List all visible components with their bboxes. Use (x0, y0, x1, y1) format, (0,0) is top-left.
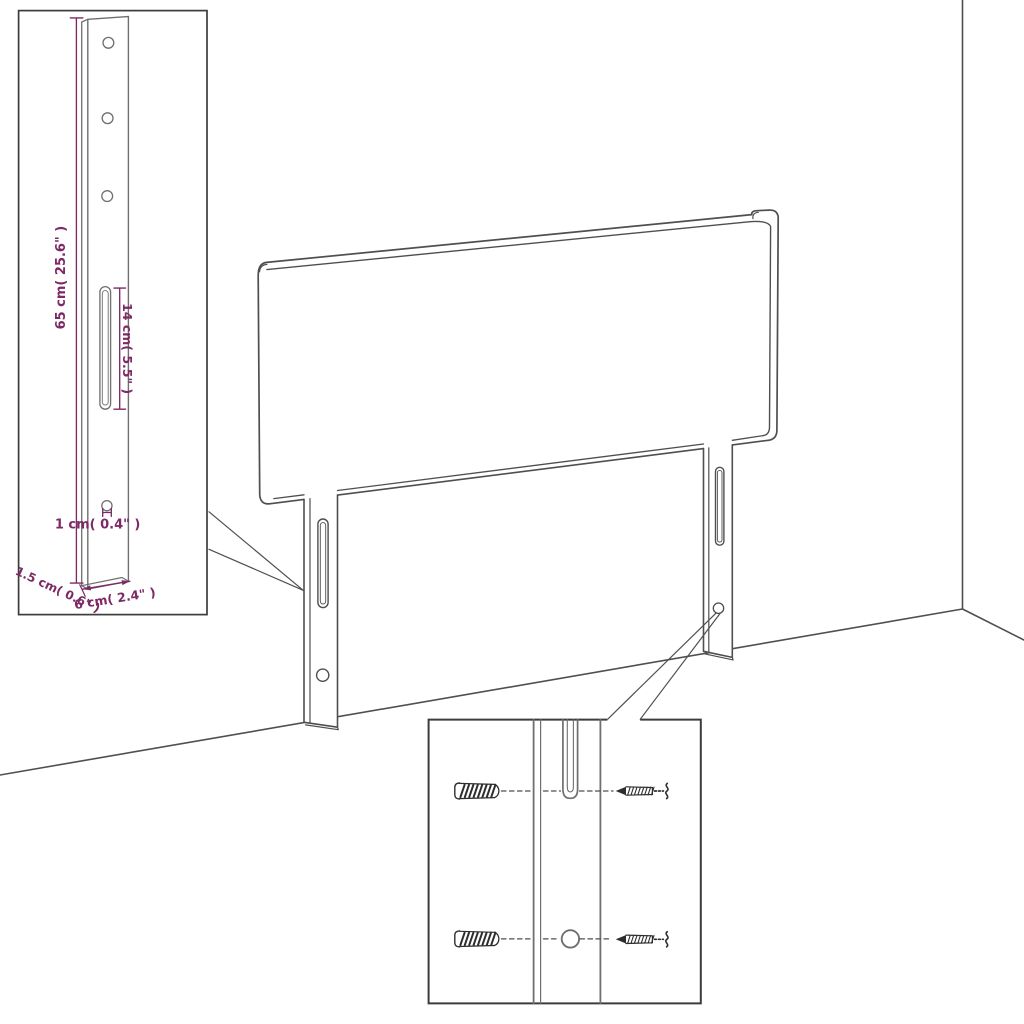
height-dimension-label: 65 cm( 25.6" ) (54, 226, 69, 330)
callout-line (209, 512, 303, 591)
mounting-detail-inset (429, 720, 701, 1004)
panel-bottom-edge (270, 440, 769, 504)
callout-line (608, 613, 717, 719)
callout-line (209, 549, 303, 590)
leg-detail-inset: 65 cm( 25.6" ) 14 cm( 5.5" ) 1 cm( 0.4" … (13, 11, 303, 616)
diagram-canvas: 65 cm( 25.6" ) 14 cm( 5.5" ) 1 cm( 0.4" … (0, 0, 1024, 1024)
hole-dimension-label: 1 cm( 0.4" ) (55, 517, 141, 532)
callout-lines-leg-detail (209, 512, 303, 591)
panel-inner-edge (267, 221, 771, 435)
panel-outline (258, 210, 778, 504)
callout-line (640, 613, 720, 719)
right-mounting-leg (704, 445, 734, 660)
mounting-detail-inset-border (429, 720, 701, 1004)
slot-dimension-label: 14 cm( 5.5" ) (120, 303, 135, 394)
floor-line-right (963, 609, 1024, 640)
diagram: 65 cm( 25.6" ) 14 cm( 5.5" ) 1 cm( 0.4" … (0, 0, 1024, 1024)
headboard-panel (258, 210, 778, 504)
left-mounting-leg (304, 495, 338, 730)
panel-inner-bottom-edge (274, 436, 764, 499)
